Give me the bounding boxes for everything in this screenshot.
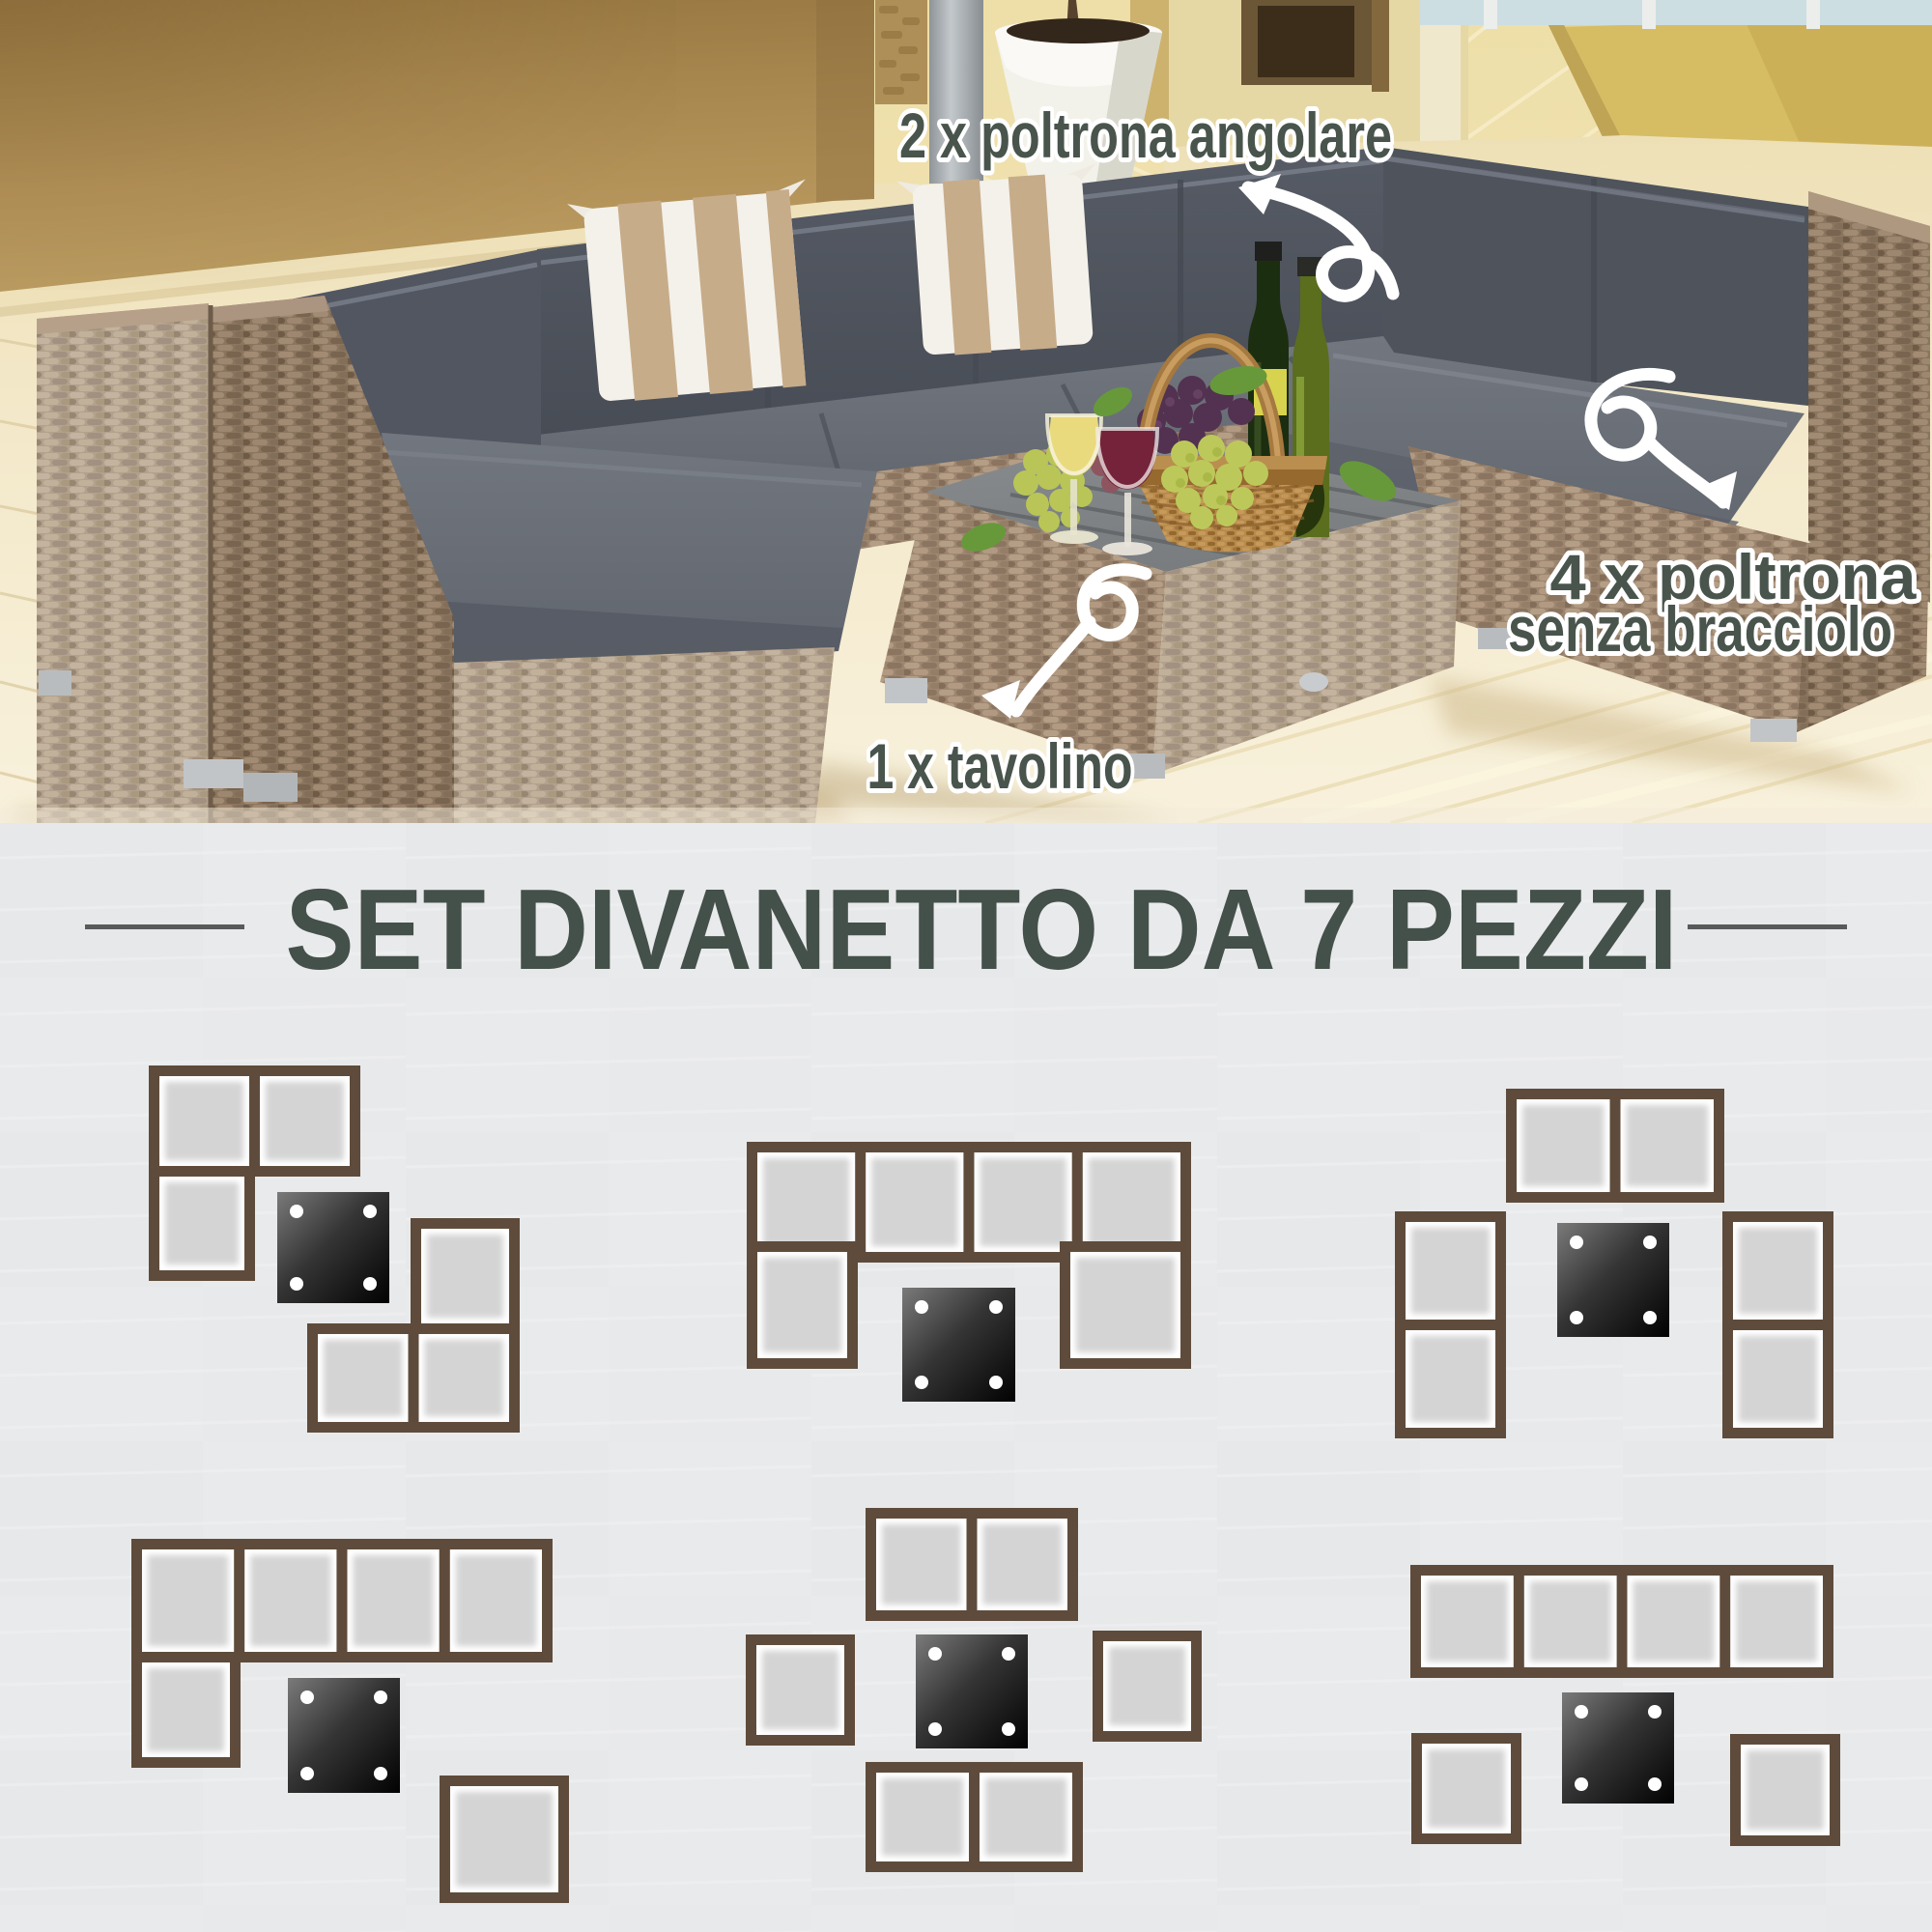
svg-text:1 x tavolino: 1 x tavolino (867, 730, 1133, 802)
svg-text:senza bracciolo: senza bracciolo (1508, 593, 1892, 665)
svg-text:2 x poltrona angolare: 2 x poltrona angolare (899, 99, 1392, 171)
svg-text:SET DIVANETTO DA 7 PEZZI: SET DIVANETTO DA 7 PEZZI (286, 866, 1678, 994)
